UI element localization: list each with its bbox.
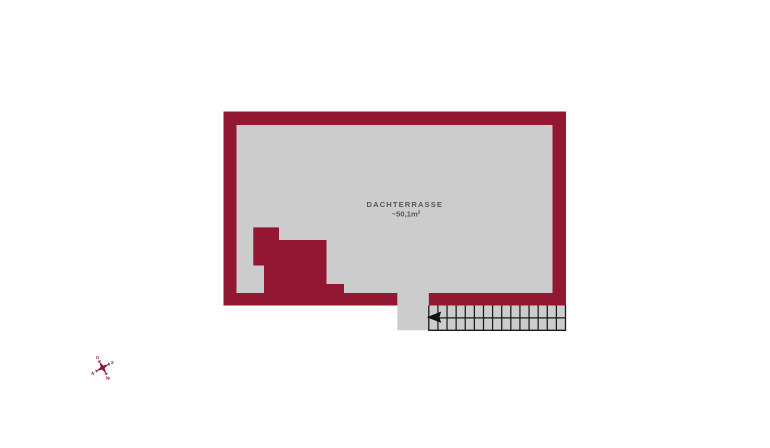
svg-text:~50,1m²: ~50,1m² <box>392 210 421 219</box>
svg-text:DACHTERRASSE: DACHTERRASSE <box>367 200 444 209</box>
